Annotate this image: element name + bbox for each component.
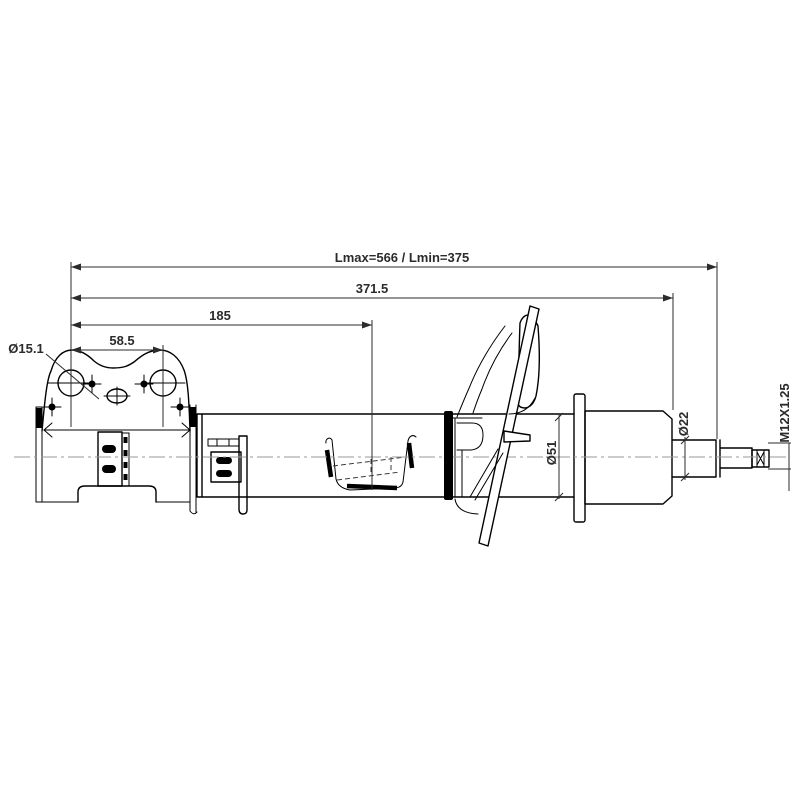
flange-ring (574, 394, 585, 522)
arrowhead (153, 347, 163, 354)
label-58-5: 58.5 (109, 333, 134, 348)
bracket-slot (216, 470, 232, 477)
label-rod-diameter: Ø22 (676, 412, 691, 437)
dim-line-58-5 (71, 345, 163, 427)
clamp-weld-left (327, 450, 331, 477)
clamp-hidden-edges (333, 457, 406, 480)
seat-collar (453, 418, 483, 514)
strut-tube (197, 414, 574, 497)
tube-side-bracket (208, 436, 247, 514)
label-185: 185 (209, 308, 231, 323)
technical-drawing-canvas: Lmax=566 / Lmin=375 371.5 185 58.5 Ø15.1… (0, 0, 800, 800)
spring-seat (444, 306, 539, 546)
collar-pocket (457, 423, 483, 450)
mount-profile (42, 350, 190, 431)
ladder-rung (124, 462, 128, 468)
dim-line-lmax (71, 262, 717, 439)
mount-inner-bracket (98, 432, 122, 486)
arrowhead (707, 264, 717, 271)
label-thread-spec: M12X1.25 (777, 383, 792, 442)
label-hole-diameter: Ø15.1 (8, 341, 43, 356)
arrowhead (71, 264, 81, 271)
center-slot-crosshair (104, 387, 130, 405)
seat-back-curves (457, 326, 512, 417)
dim-line-thread (768, 443, 791, 491)
mount-left-wall-tab (37, 408, 42, 428)
bracket-slot (216, 457, 232, 464)
thread-marks (757, 450, 764, 467)
arrowhead (71, 347, 81, 354)
bump-stop-band (444, 411, 453, 500)
rod-shank (720, 448, 752, 468)
mid-clamp-bracket (326, 436, 416, 490)
seat-arm (504, 431, 530, 442)
label-371-5: 371.5 (356, 281, 389, 296)
shock-absorber-drawing: Lmax=566 / Lmin=375 371.5 185 58.5 Ø15.1… (0, 0, 800, 800)
label-body-diameter: Ø51 (544, 441, 559, 466)
label-length-overall: Lmax=566 / Lmin=375 (335, 250, 469, 265)
rod-section (672, 440, 720, 477)
collar-bottom-curl (455, 499, 478, 514)
lower-flange-ring (574, 394, 585, 522)
arrowhead (663, 295, 673, 302)
inner-bracket-slot (102, 465, 116, 473)
bracket-top-flange (208, 439, 239, 446)
bracket-l-flange (239, 436, 247, 514)
mount-right-wall-tab (191, 407, 196, 427)
arrowhead (71, 295, 81, 302)
dimensions (46, 262, 791, 501)
ladder-rung (124, 474, 128, 480)
top-mount-bracket (36, 350, 197, 514)
ladder-rung (124, 437, 128, 443)
ladder-rung (124, 450, 128, 456)
mount-left-wall (36, 407, 190, 502)
dim-line-dia22 (681, 436, 689, 481)
mount-pedestal (78, 486, 156, 502)
seat-slanted-bar (479, 306, 539, 546)
clamp-weld-right (409, 443, 412, 468)
arrowhead (71, 322, 81, 329)
arrowhead (362, 322, 372, 329)
piston-rod-assembly (672, 440, 769, 477)
leader-line-dia15 (46, 354, 99, 399)
inner-bracket-slot (102, 445, 116, 453)
tube-body (197, 414, 574, 497)
